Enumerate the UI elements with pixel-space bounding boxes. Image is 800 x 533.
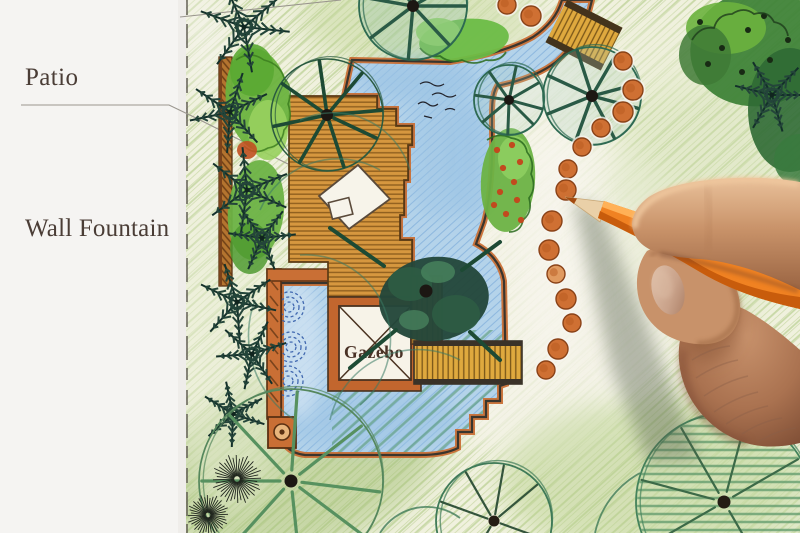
svg-text:Wall Fountain: Wall Fountain	[25, 215, 170, 242]
svg-text:Patio: Patio	[25, 64, 78, 91]
